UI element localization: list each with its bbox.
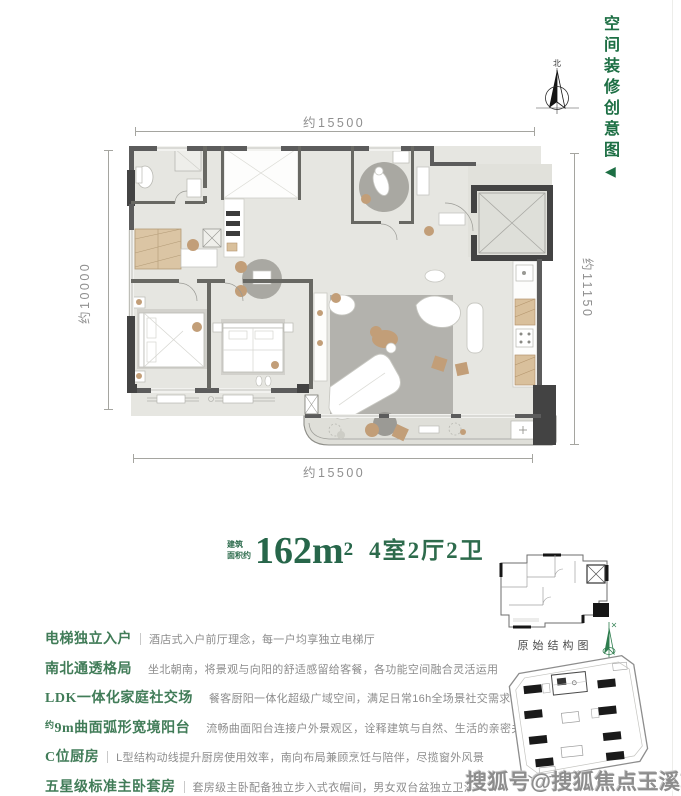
- dimension-left: 约10000: [74, 262, 93, 324]
- feature-divider: [107, 751, 108, 763]
- area-number: 162m: [255, 530, 344, 572]
- feature-desc: 套房级主卧配备独立步入式衣帽间，男女双台盆独立卫浴: [193, 779, 476, 795]
- page-edge-line: [672, 0, 673, 796]
- feature-label-sup: 约: [45, 720, 55, 730]
- tick: [104, 150, 113, 151]
- side-headline: 空间装修创意图: [601, 15, 617, 165]
- feature-row: LDK一体化家庭社交场 餐客厨阳一体化超级广域空间，满足日常16h全场景社交需求: [45, 687, 495, 707]
- dimension-right-line: [574, 153, 575, 445]
- area-prefix-line2: 面积约: [227, 551, 251, 561]
- feature-row: 约9m曲面弧形宽境阳台 流畅曲面阳台连接户外景观区，诠释建筑与自然、生活的亲密关…: [45, 717, 495, 737]
- page: 空间装修创意图 ◀ 北 约15500 约15500 约10000 约11150: [0, 0, 681, 796]
- area-prefix-line1: 建筑: [227, 540, 251, 550]
- feature-row: 电梯独立入户 酒店式入户前厅理念，每一户均享独立电梯厅: [45, 628, 495, 648]
- feature-label-text: LDK一体化家庭社交场: [45, 691, 193, 706]
- feature-label: 五星级标准主卧套房: [45, 776, 176, 796]
- feature-row: C位厨房 L型结构动线提升厨房使用效率，南向布局兼顾烹饪与陪伴，尽揽窗外风景: [45, 746, 495, 766]
- unit-title: 建筑 面积约 162m2 4室2厅2卫: [227, 530, 485, 568]
- feature-list: 电梯独立入户 酒店式入户前厅理念，每一户均享独立电梯厅 南北通透格局 坐北朝南，…: [45, 628, 495, 796]
- feature-label-text: 南北通透格局: [45, 662, 132, 677]
- dimension-left-line: [108, 150, 109, 410]
- feature-divider: [184, 781, 185, 793]
- feature-label: 电梯独立入户: [45, 628, 132, 648]
- compass-north-label: 北: [553, 59, 561, 68]
- dimension-top: 约15500: [303, 112, 365, 131]
- feature-label: C位厨房: [45, 746, 99, 766]
- tick: [104, 409, 113, 410]
- feature-row: 五星级标准主卧套房 套房级主卧配备独立步入式衣帽间，男女双台盆独立卫浴: [45, 776, 495, 796]
- feature-desc: L型结构动线提升厨房使用效率，南向布局兼顾烹饪与陪伴，尽揽窗外风景: [116, 749, 484, 765]
- triangle-left-icon: ◀: [605, 164, 616, 178]
- area-value: 162m2: [255, 534, 353, 568]
- feature-label: 南北通透格局: [45, 658, 132, 678]
- floor-plan: [123, 133, 563, 478]
- area-prefix: 建筑 面积约: [227, 540, 251, 568]
- feature-label: LDK一体化家庭社交场: [45, 687, 193, 707]
- area-superscript: 2: [344, 539, 354, 560]
- structure-diagram-caption: 原始结构图: [495, 637, 615, 653]
- room-layout: 4室2厅2卫: [369, 531, 485, 568]
- feature-desc: 餐客厨阳一体化超级广域空间，满足日常16h全场景社交需求: [209, 690, 511, 706]
- tick: [570, 153, 579, 154]
- feature-label-text: 9m曲面弧形宽境阳台: [55, 721, 191, 736]
- feature-label: 约9m曲面弧形宽境阳台: [45, 717, 190, 737]
- dimension-right: 约11150: [579, 258, 598, 318]
- feature-desc: 流畅曲面阳台连接户外景观区，诠释建筑与自然、生活的亲密关系: [206, 720, 534, 736]
- tick: [570, 444, 579, 445]
- compass-icon: 北: [535, 56, 581, 120]
- feature-desc: 酒店式入户前厅理念，每一户均享独立电梯厅: [149, 631, 375, 647]
- feature-label-text: 电梯独立入户: [45, 632, 132, 647]
- feature-label-text: C位厨房: [45, 750, 99, 765]
- dimension-top-line: [135, 131, 535, 132]
- feature-label-text: 五星级标准主卧套房: [45, 780, 176, 795]
- feature-divider: [140, 633, 141, 645]
- watermark: 搜狐号@搜狐焦点玉溪站: [466, 766, 681, 796]
- feature-row: 南北通透格局 坐北朝南，将景观与向阳的舒适感留给客餐，各功能空间融合灵活运用: [45, 658, 495, 678]
- feature-desc: 坐北朝南，将景观与向阳的舒适感留给客餐，各功能空间融合灵活运用: [148, 661, 498, 677]
